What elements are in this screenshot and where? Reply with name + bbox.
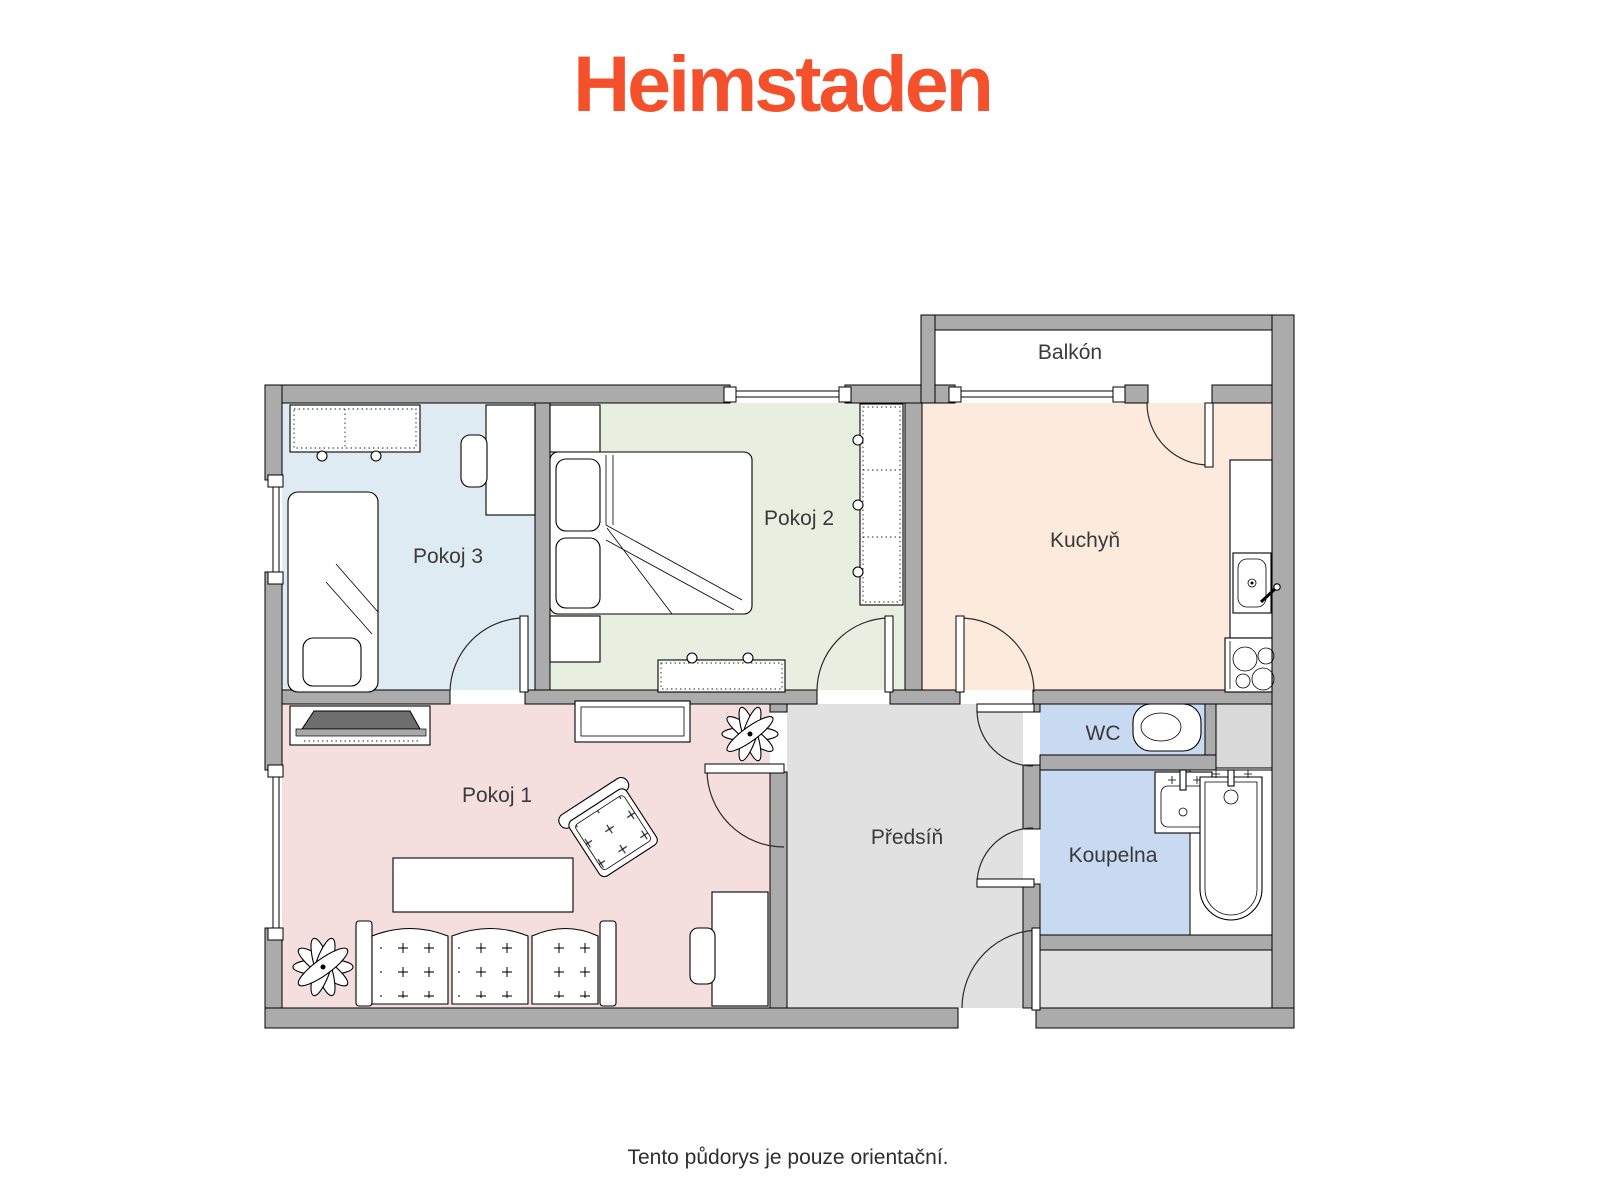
tv bbox=[302, 711, 420, 729]
label-pokoj2: Pokoj 2 bbox=[764, 507, 834, 530]
floorplan-page: Heimstaden bbox=[0, 0, 1600, 1200]
wardrobe-knob bbox=[853, 435, 863, 445]
wardrobe-knob bbox=[371, 451, 381, 461]
window-pokoj3 bbox=[273, 487, 279, 572]
label-wc: WC bbox=[1086, 722, 1121, 745]
wall-wc-bottom bbox=[1040, 755, 1216, 770]
disclaimer-text: Tento půdorys je pouze orientační. bbox=[0, 1146, 1588, 1170]
toilet bbox=[1133, 704, 1201, 751]
window-balcony bbox=[961, 391, 1113, 397]
nightstand bbox=[550, 405, 600, 452]
wardrobe bbox=[290, 405, 420, 452]
dresser-knob bbox=[743, 653, 753, 663]
cushion-pattern bbox=[538, 942, 590, 998]
room-balkon bbox=[935, 330, 1272, 385]
tub-faucet bbox=[1228, 770, 1234, 786]
sofa bbox=[356, 921, 616, 1006]
dresser-knob bbox=[687, 653, 697, 663]
wall-top-3 bbox=[1125, 385, 1148, 403]
wall-wc-shaft bbox=[1205, 704, 1216, 755]
wall-balcony-top bbox=[921, 315, 1294, 330]
wall-mid-3 bbox=[890, 690, 960, 704]
room-corridor bbox=[1040, 950, 1272, 1008]
cushion-pattern bbox=[458, 942, 520, 998]
wardrobe-knob bbox=[853, 500, 863, 510]
bed-pillow bbox=[556, 459, 600, 531]
sink-drain-dot bbox=[1251, 582, 1254, 585]
wall-pokoj2-kuchyn bbox=[905, 403, 922, 690]
tv-base bbox=[296, 729, 426, 736]
wall-bottom-2 bbox=[1036, 1008, 1294, 1028]
stove bbox=[1225, 638, 1272, 692]
sofa-armrest bbox=[600, 921, 616, 1006]
wall-balcony-left bbox=[921, 315, 935, 403]
wall-pokoj1-hall-2 bbox=[770, 772, 787, 1008]
sofa-armrest bbox=[356, 921, 372, 1006]
bathtub bbox=[1200, 777, 1262, 920]
window-jamb bbox=[268, 928, 283, 940]
desk bbox=[712, 892, 768, 1006]
chair bbox=[461, 435, 487, 487]
room-predsin bbox=[787, 704, 1023, 1008]
wall-left-1 bbox=[265, 385, 282, 480]
window-pokoj1 bbox=[273, 777, 279, 928]
faucet-head bbox=[1274, 584, 1280, 590]
shaft bbox=[1216, 704, 1272, 768]
window-jamb bbox=[724, 387, 736, 402]
window-jamb bbox=[268, 572, 283, 584]
window-pokoj2 bbox=[736, 391, 839, 397]
wall-top-1 bbox=[265, 385, 730, 403]
wall-left-2 bbox=[265, 572, 282, 770]
wall-hall-wc-2 bbox=[1023, 765, 1040, 829]
wall-bottom-1 bbox=[265, 1008, 958, 1028]
bed-pillow bbox=[556, 538, 600, 608]
wall-pokoj3-pokoj2 bbox=[535, 403, 550, 690]
basin-faucet bbox=[1180, 770, 1186, 790]
bed-pillow bbox=[303, 638, 361, 686]
nightstand bbox=[550, 616, 600, 662]
cushion-pattern bbox=[380, 942, 440, 998]
wardrobe-knob bbox=[317, 451, 327, 461]
window-jamb bbox=[1113, 387, 1125, 402]
chair bbox=[690, 928, 715, 984]
coffee-table bbox=[393, 858, 573, 912]
window-jamb bbox=[839, 387, 851, 402]
furniture-kuchyn bbox=[1225, 460, 1280, 692]
wall-top-2 bbox=[845, 385, 955, 403]
wall-right bbox=[1272, 315, 1294, 1028]
dresser bbox=[658, 660, 785, 692]
wall-top-4 bbox=[1212, 385, 1272, 403]
label-pokoj3: Pokoj 3 bbox=[413, 545, 483, 568]
floorplan-drawing: Balkón Pokoj 3 Pokoj 2 Kuchyň WC Koupeln… bbox=[0, 0, 1600, 1200]
desk bbox=[486, 405, 535, 515]
label-balkon: Balkón bbox=[1038, 341, 1102, 364]
wall-pokoj1-hall-1 bbox=[770, 704, 787, 712]
window-jamb bbox=[949, 387, 961, 402]
tall-wardrobe bbox=[860, 404, 903, 605]
wall-bath-bottom bbox=[1040, 935, 1272, 950]
label-kuchyn: Kuchyň bbox=[1050, 529, 1120, 552]
window-jamb bbox=[268, 765, 283, 777]
label-pokoj1: Pokoj 1 bbox=[462, 784, 532, 807]
window-jamb bbox=[268, 475, 283, 487]
wardrobe-knob bbox=[853, 567, 863, 577]
label-koupelna: Koupelna bbox=[1069, 844, 1158, 867]
label-predsin: Předsíň bbox=[871, 826, 943, 849]
